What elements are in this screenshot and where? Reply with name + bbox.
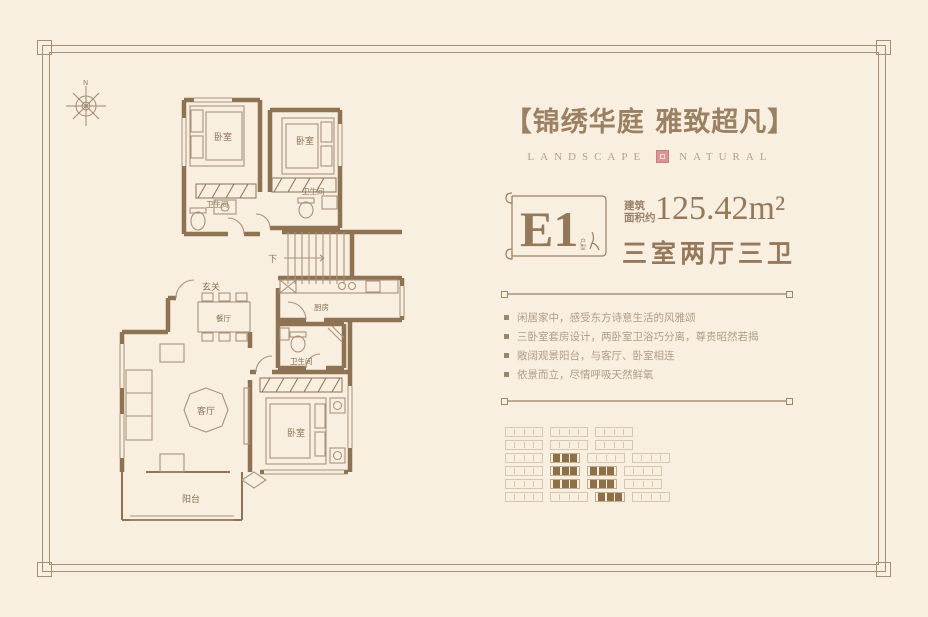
building-highlighted [550, 466, 580, 476]
bullet-square-icon [504, 315, 509, 320]
bed [266, 398, 345, 464]
room-label-foyer: 玄关 [202, 281, 220, 293]
room-label-bath: 卫生间 [206, 199, 229, 209]
room-label-bedroom: 卧室 [296, 135, 314, 147]
siteplan-location-pattern [505, 424, 677, 502]
bullet-square-icon [504, 372, 509, 377]
siteplan-row [505, 476, 677, 489]
feature-item: 依景而立，尽情呼吸天然鲜氧 [504, 369, 804, 381]
building-outline [505, 453, 543, 463]
room-label-bath: 卫生间 [302, 186, 325, 196]
frame-corner [37, 40, 52, 55]
frame-corner [876, 40, 891, 55]
page-title: 【锦绣华庭 雅致超凡】 [470, 100, 830, 139]
feature-item: 三卧室套房设计，两卧室卫浴巧分离，尊贵昭然若揭 [504, 331, 804, 343]
building-outline [595, 440, 633, 450]
brand-right: NATURAL [679, 151, 772, 163]
compass-icon: N [64, 76, 108, 128]
building-outline [550, 492, 588, 502]
building-outline [505, 492, 543, 502]
room-label-kitchen: 厨房 [314, 302, 329, 312]
unit-code: E1 [520, 201, 578, 257]
area-value: 125.42m² [655, 190, 785, 228]
sofa-set [126, 344, 266, 488]
siteplan-row [505, 450, 677, 463]
bullet-square-icon [504, 334, 509, 339]
building-highlighted [587, 466, 617, 476]
bullet-square-icon [504, 353, 509, 358]
feature-item: 闲居家中，感受东方诗意生活的风雅颂 [504, 312, 804, 324]
seal-icon [656, 150, 669, 163]
siteplan-row [505, 463, 677, 476]
building-outline [587, 453, 625, 463]
building-outline [505, 440, 543, 450]
building-highlighted [587, 479, 617, 489]
building-outline [624, 466, 662, 476]
area-label: 建筑 面积约 [624, 200, 656, 224]
room-label-bedroom: 卧室 [287, 427, 305, 439]
room-label-living: 客厅 [197, 405, 215, 417]
building-highlighted [550, 479, 580, 489]
room-label-bedroom: 卧室 [214, 131, 232, 143]
room-label-dining: 餐厅 [216, 314, 231, 323]
building-outline [505, 466, 543, 476]
building-outline [505, 479, 543, 489]
building-outline [632, 453, 670, 463]
frame-corner [876, 562, 891, 577]
building-outline [624, 479, 662, 489]
divider [505, 400, 789, 402]
building-outline [505, 427, 543, 437]
stairs-label: 下 [268, 255, 277, 265]
feature-item: 敞阔观景阳台，与客厅、卧室相连 [504, 350, 804, 362]
feature-list: 闲居家中，感受东方诗意生活的风雅颂 三卧室套房设计，两卧室卫浴巧分离，尊贵昭然若… [504, 312, 804, 388]
kitchen-counter [280, 280, 398, 293]
brochure-page: N [0, 0, 928, 617]
building-outline [595, 427, 633, 437]
building-highlighted [550, 453, 580, 463]
building-highlighted [595, 492, 625, 502]
divider [505, 293, 789, 295]
brand-line: LANDSCAPE NATURAL [470, 150, 830, 163]
unit-code-tag: 户型 [579, 237, 586, 250]
unit-badge: E1 户型 [498, 190, 616, 264]
room-label-balcony: 阳台 [182, 493, 200, 505]
building-outline [550, 427, 588, 437]
rooms-summary: 三室两厅三卫 [622, 234, 796, 270]
siteplan-row [505, 437, 677, 450]
brand-left: LANDSCAPE [527, 151, 646, 163]
floorplan: 卧室 卧室 卫生间 卫生间 下 玄关 餐厅 厨房 卫生间 客厅 卧室 阳台 [110, 80, 410, 532]
building-outline [632, 492, 670, 502]
building-outline [550, 440, 588, 450]
crane-icon [590, 232, 599, 250]
compass-north-label: N [83, 79, 88, 87]
siteplan-row [505, 424, 677, 437]
room-label-bath: 卫生间 [290, 356, 313, 366]
frame-corner [37, 562, 52, 577]
siteplan-row [505, 489, 677, 502]
